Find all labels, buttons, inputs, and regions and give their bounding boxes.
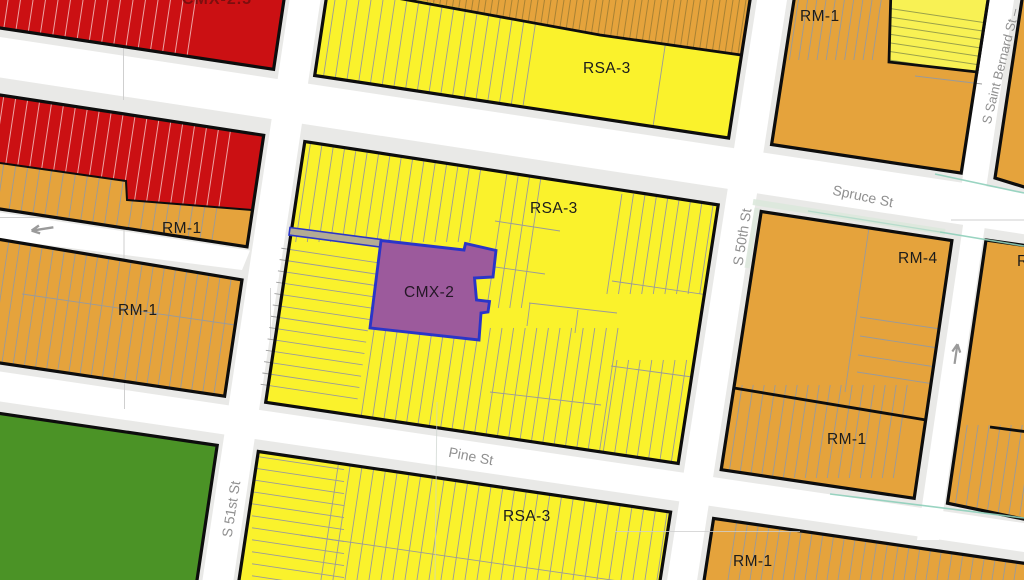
svg-text:RSA-3: RSA-3 xyxy=(530,200,578,217)
svg-text:RSA-3: RSA-3 xyxy=(583,60,631,77)
svg-text:RM-1: RM-1 xyxy=(800,8,840,25)
svg-text:R: R xyxy=(1017,253,1024,270)
svg-text:RM-1: RM-1 xyxy=(162,220,202,237)
svg-text:CMX-2: CMX-2 xyxy=(404,284,454,301)
svg-text:RM-1: RM-1 xyxy=(827,431,867,448)
svg-text:RM-1: RM-1 xyxy=(733,553,773,570)
svg-text:CMX-2.5: CMX-2.5 xyxy=(182,0,252,8)
svg-text:RSA-3: RSA-3 xyxy=(503,508,551,525)
svg-text:RM-4: RM-4 xyxy=(898,250,938,267)
svg-text:RM-1: RM-1 xyxy=(118,302,158,319)
